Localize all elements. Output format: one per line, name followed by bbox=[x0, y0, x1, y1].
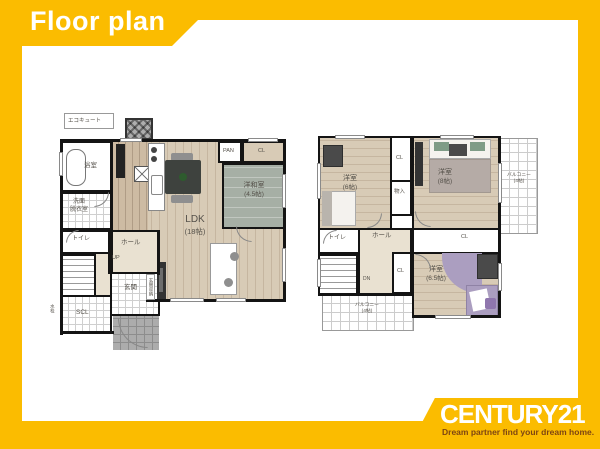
title-tab-diagonal bbox=[172, 20, 198, 46]
window bbox=[216, 298, 246, 302]
washroom-label-line2: 脱衣室 bbox=[70, 207, 88, 215]
storage-label: 物入 bbox=[394, 189, 405, 196]
balcony-bottom-size: (4帖) bbox=[345, 309, 389, 315]
closet-right-label: CL bbox=[461, 234, 468, 241]
bedroom6-label: 洋室 (6帖) bbox=[330, 175, 370, 192]
work-desk bbox=[210, 243, 237, 295]
page-title: Floor plan bbox=[30, 6, 166, 37]
tatami-name: 洋和室 bbox=[229, 182, 279, 191]
bed-pillow bbox=[470, 142, 485, 151]
window bbox=[59, 152, 63, 176]
floor2-plan: 洋室 (6帖) CL 物入 洋室 (8帖) バルコニー (4帖) トイレ ホール… bbox=[315, 133, 545, 333]
floor-plan-page: Floor plan エコキュート bbox=[0, 0, 600, 449]
floor2-balcony-right bbox=[500, 138, 538, 234]
desk bbox=[323, 145, 343, 167]
closet-mid-label: CL bbox=[397, 268, 404, 275]
tatami-label: 洋和室 (4.5帖) bbox=[229, 182, 279, 199]
refrigerator bbox=[116, 144, 125, 178]
bedroom8-label: 洋室 (8帖) bbox=[425, 169, 465, 186]
up-label: UP bbox=[112, 255, 120, 262]
window bbox=[498, 263, 502, 291]
bedroom8-size: (8帖) bbox=[425, 178, 465, 186]
pantry-label: PAN bbox=[223, 148, 234, 155]
dining-chair bbox=[171, 195, 193, 203]
window bbox=[435, 315, 471, 319]
bedroom8-name: 洋室 bbox=[425, 169, 465, 178]
floor2-closet-right bbox=[412, 228, 500, 254]
floor1-ecocute-label: エコキュート bbox=[68, 118, 101, 125]
hall2-label: ホール bbox=[372, 232, 392, 240]
balcony-bottom-label: バルコニー (4帖) bbox=[345, 303, 389, 315]
washroom-label-line1: 洗面 bbox=[70, 199, 88, 207]
bedroom65-size: (6.5帖) bbox=[415, 275, 457, 283]
bedroom6-size: (6帖) bbox=[330, 184, 370, 192]
bath-label: 浴室 bbox=[84, 162, 97, 170]
chair bbox=[485, 298, 496, 309]
window bbox=[440, 135, 474, 139]
closet-label: CL bbox=[258, 148, 265, 155]
ldk-label: LDK (18帖) bbox=[170, 214, 220, 236]
scl-label: SCL bbox=[76, 309, 89, 317]
floor1-ecocute-box: エコキュート bbox=[64, 113, 114, 129]
bedroom6-name: 洋室 bbox=[330, 175, 370, 184]
table-plant bbox=[179, 173, 187, 181]
floor1-equipment-pad bbox=[125, 118, 153, 140]
entrance-label: 玄関 bbox=[124, 284, 137, 292]
balcony-right-size: (4帖) bbox=[501, 179, 537, 185]
dn-label: DN bbox=[363, 276, 370, 282]
bathtub bbox=[66, 149, 86, 186]
stove-burner bbox=[151, 156, 157, 162]
ldk-name: LDK bbox=[170, 214, 220, 227]
floor2-stairs bbox=[318, 254, 358, 296]
floor1-stairs bbox=[60, 254, 96, 297]
window bbox=[282, 174, 286, 208]
frame-right-band bbox=[578, 0, 600, 449]
entrance-storage-label: 玄関収納 bbox=[146, 274, 155, 300]
desk bbox=[477, 254, 498, 279]
floor2-storage bbox=[390, 180, 412, 216]
wall-segment bbox=[110, 139, 113, 274]
toilet2-label: トイレ bbox=[328, 235, 346, 242]
balcony-right-label: バルコニー (4帖) bbox=[501, 173, 537, 185]
floor1-plan: エコキュート bbox=[58, 112, 286, 354]
desk-chair bbox=[224, 278, 233, 287]
washroom-label: 洗面 脱衣室 bbox=[70, 199, 88, 214]
bedroom65-label: 洋室 (6.5帖) bbox=[415, 266, 457, 283]
frame-left-band bbox=[0, 0, 22, 449]
wall-segment bbox=[157, 230, 160, 275]
window bbox=[335, 135, 365, 139]
desk-chair bbox=[230, 252, 239, 261]
stove-burner bbox=[151, 147, 157, 153]
window bbox=[317, 163, 321, 199]
window bbox=[170, 298, 204, 302]
toilet-label: トイレ bbox=[72, 236, 90, 243]
closet-top-label: CL bbox=[396, 155, 403, 162]
wall-segment bbox=[318, 293, 414, 296]
window bbox=[248, 138, 278, 142]
tatami-size: (4.5帖) bbox=[229, 191, 279, 199]
bed-blanket bbox=[449, 144, 467, 156]
brand-plate: CENTURY21 Dream partner find your dream … bbox=[408, 398, 600, 449]
window bbox=[120, 138, 142, 142]
floor1-hall bbox=[108, 230, 160, 274]
window bbox=[317, 259, 321, 287]
bed-pillow bbox=[434, 142, 449, 151]
water-tap-label: 水栓 bbox=[50, 304, 55, 313]
window bbox=[282, 248, 286, 282]
bedroom65-name: 洋室 bbox=[415, 266, 457, 275]
ldk-size: (18帖) bbox=[170, 227, 220, 236]
brand-logo: CENTURY21 bbox=[440, 399, 585, 430]
wall-segment bbox=[60, 331, 114, 334]
brand-tagline: Dream partner find your dream home. bbox=[442, 427, 594, 437]
kitchen-sink bbox=[151, 175, 163, 195]
hall-label: ホール bbox=[121, 239, 141, 247]
bed-pillow bbox=[322, 191, 332, 226]
tv-board bbox=[415, 142, 423, 186]
